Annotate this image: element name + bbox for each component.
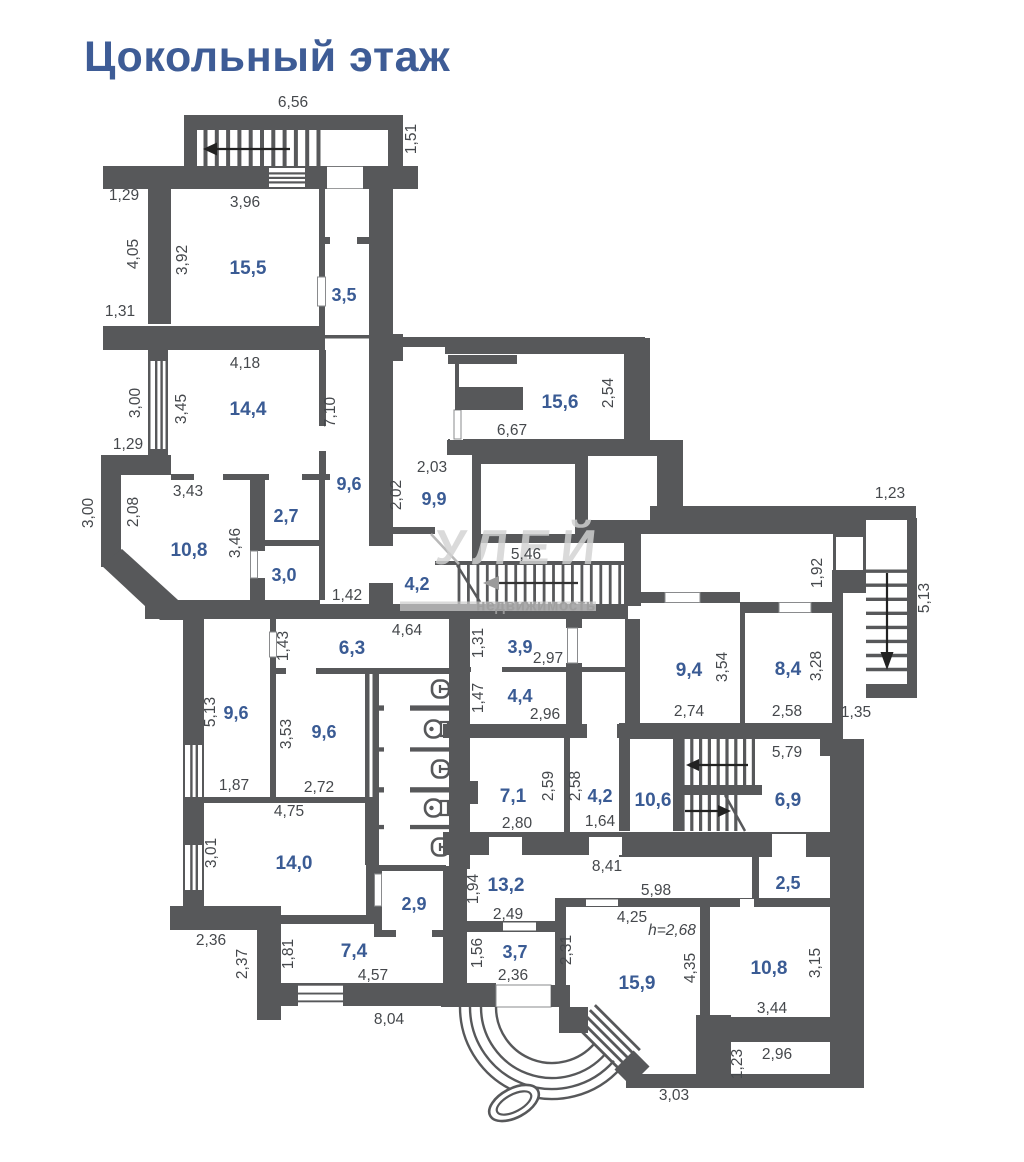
svg-text:1,92: 1,92 <box>809 558 826 588</box>
svg-text:2,5: 2,5 <box>775 873 800 893</box>
svg-text:3,00: 3,00 <box>80 498 97 529</box>
svg-text:3,45: 3,45 <box>173 394 190 424</box>
svg-text:2,36: 2,36 <box>498 967 528 984</box>
svg-text:6,3: 6,3 <box>339 638 365 659</box>
svg-text:8,4: 8,4 <box>775 659 802 680</box>
svg-text:3,9: 3,9 <box>507 637 532 657</box>
svg-text:1,87: 1,87 <box>219 777 249 794</box>
svg-text:4,2: 4,2 <box>404 574 429 594</box>
svg-text:3,01: 3,01 <box>203 838 220 868</box>
svg-text:2,37: 2,37 <box>234 949 251 979</box>
svg-text:3,03: 3,03 <box>659 1087 689 1104</box>
svg-text:6,9: 6,9 <box>775 790 801 811</box>
svg-text:2,80: 2,80 <box>502 815 533 832</box>
svg-text:1,47: 1,47 <box>470 683 487 713</box>
svg-text:10,8: 10,8 <box>751 958 788 979</box>
svg-text:3,00: 3,00 <box>127 388 144 419</box>
svg-text:2,54: 2,54 <box>600 378 617 409</box>
svg-text:13,2: 13,2 <box>488 875 525 896</box>
svg-text:2,36: 2,36 <box>196 932 226 949</box>
svg-text:2,59: 2,59 <box>540 771 557 801</box>
svg-text:1,43: 1,43 <box>275 631 292 661</box>
svg-text:2,96: 2,96 <box>530 706 560 723</box>
svg-text:9,4: 9,4 <box>676 660 703 681</box>
svg-text:4,75: 4,75 <box>274 803 304 820</box>
svg-text:9,9: 9,9 <box>421 489 446 509</box>
svg-text:2,72: 2,72 <box>304 779 334 796</box>
svg-text:2,58: 2,58 <box>567 771 584 801</box>
svg-text:2,97: 2,97 <box>533 650 563 667</box>
svg-text:3,92: 3,92 <box>174 245 191 275</box>
svg-text:5,79: 5,79 <box>772 744 802 761</box>
svg-text:7,1: 7,1 <box>500 786 527 807</box>
svg-text:5,13: 5,13 <box>916 583 933 613</box>
svg-text:4,57: 4,57 <box>358 967 388 984</box>
svg-text:2,03: 2,03 <box>417 459 447 476</box>
svg-text:1,35: 1,35 <box>841 704 871 721</box>
svg-text:1,81: 1,81 <box>280 939 297 969</box>
svg-text:1,29: 1,29 <box>113 436 143 453</box>
svg-text:4,2: 4,2 <box>587 786 612 806</box>
svg-text:4,64: 4,64 <box>392 622 423 639</box>
svg-text:3,54: 3,54 <box>714 652 731 683</box>
svg-text:2,31: 2,31 <box>558 935 575 965</box>
svg-text:3,5: 3,5 <box>331 285 356 305</box>
svg-text:8,04: 8,04 <box>374 1011 405 1028</box>
svg-text:4,4: 4,4 <box>507 686 532 706</box>
svg-text:9,6: 9,6 <box>336 474 361 494</box>
svg-text:14,0: 14,0 <box>276 853 313 874</box>
svg-text:3,53: 3,53 <box>278 719 295 749</box>
svg-text:2,58: 2,58 <box>772 703 802 720</box>
svg-text:5,13: 5,13 <box>202 697 219 727</box>
svg-text:2,49: 2,49 <box>493 906 523 923</box>
svg-text:1,31: 1,31 <box>470 628 487 658</box>
svg-text:15,9: 15,9 <box>619 973 656 994</box>
svg-text:2,74: 2,74 <box>674 703 705 720</box>
svg-text:h=2,68: h=2,68 <box>648 922 696 939</box>
svg-text:7,4: 7,4 <box>341 941 368 962</box>
svg-text:3,43: 3,43 <box>173 483 203 500</box>
svg-text:14,4: 14,4 <box>230 399 267 420</box>
svg-text:2,9: 2,9 <box>401 894 426 914</box>
svg-text:3,0: 3,0 <box>271 565 296 585</box>
svg-text:1,51: 1,51 <box>403 124 420 154</box>
svg-text:1,56: 1,56 <box>469 938 486 968</box>
svg-text:2,96: 2,96 <box>762 1046 792 1063</box>
svg-text:1,64: 1,64 <box>585 813 616 830</box>
svg-text:3,44: 3,44 <box>757 1000 788 1017</box>
svg-text:2,02: 2,02 <box>388 480 405 510</box>
svg-text:1,31: 1,31 <box>105 303 135 320</box>
svg-text:1,23: 1,23 <box>875 485 905 502</box>
svg-text:3,46: 3,46 <box>227 528 244 558</box>
svg-text:1,29: 1,29 <box>109 187 139 204</box>
svg-text:1,94: 1,94 <box>465 874 482 905</box>
svg-text:10,8: 10,8 <box>171 540 208 561</box>
svg-text:1,23: 1,23 <box>729 1049 746 1079</box>
svg-text:8,41: 8,41 <box>592 858 622 875</box>
svg-text:10,6: 10,6 <box>635 790 672 811</box>
svg-text:15,5: 15,5 <box>230 258 267 279</box>
svg-text:4,35: 4,35 <box>682 953 699 983</box>
svg-text:3,15: 3,15 <box>807 948 824 978</box>
svg-text:3,7: 3,7 <box>502 942 527 962</box>
svg-text:3,96: 3,96 <box>230 194 260 211</box>
svg-text:2,7: 2,7 <box>273 506 298 526</box>
svg-text:3,28: 3,28 <box>808 651 825 681</box>
svg-text:15,6: 15,6 <box>542 392 579 413</box>
svg-text:2,08: 2,08 <box>125 497 142 527</box>
svg-text:9,6: 9,6 <box>311 722 336 742</box>
svg-text:6,56: 6,56 <box>278 94 308 111</box>
svg-text:4,18: 4,18 <box>230 355 260 372</box>
svg-text:5,46: 5,46 <box>511 546 541 563</box>
svg-text:4,25: 4,25 <box>617 909 647 926</box>
svg-text:7,10: 7,10 <box>322 397 339 428</box>
svg-text:1,42: 1,42 <box>332 587 362 604</box>
svg-text:9,6: 9,6 <box>223 703 248 723</box>
svg-text:Цокольный этаж: Цокольный этаж <box>84 33 450 81</box>
svg-text:5,98: 5,98 <box>641 882 671 899</box>
svg-text:недвижимость: недвижимость <box>476 598 596 615</box>
svg-text:4,05: 4,05 <box>125 239 142 269</box>
svg-text:6,67: 6,67 <box>497 422 527 439</box>
